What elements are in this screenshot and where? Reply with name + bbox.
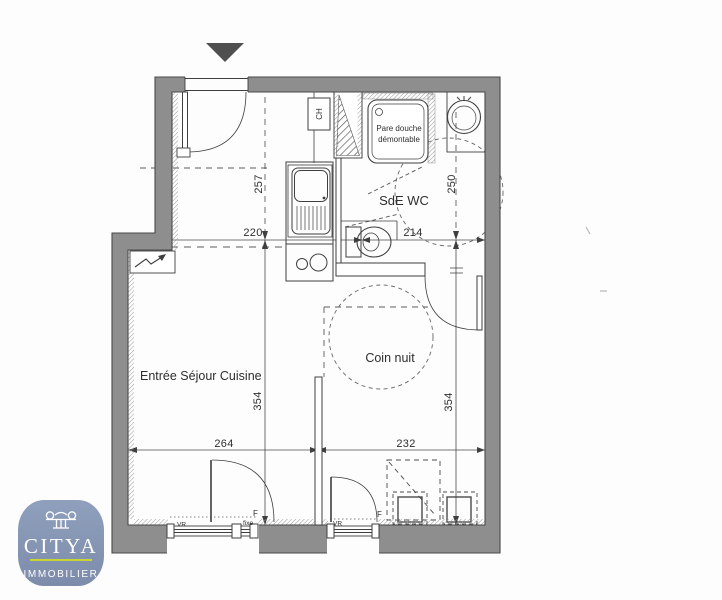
partition-bathroom-bedroom xyxy=(336,263,425,276)
sink-bowl xyxy=(295,171,328,202)
water-heater: CH xyxy=(308,98,330,130)
dimension-354-right: 354 xyxy=(443,392,455,411)
scan-artifacts xyxy=(586,227,607,291)
walls xyxy=(112,77,500,553)
room-label-living: Entrée Séjour Cuisine xyxy=(140,369,262,383)
water-heater-label: CH xyxy=(315,108,324,120)
sink-drain xyxy=(323,197,326,200)
shower-label-line2: démontable xyxy=(378,135,420,144)
wardrobe-diagonal xyxy=(389,462,436,516)
radiator-2 xyxy=(447,497,471,522)
interior-door-leaf xyxy=(477,276,482,330)
window-2: VR F xyxy=(327,477,382,555)
shower-label-line1: Pare douche xyxy=(376,124,422,133)
radiator-1 xyxy=(398,497,422,522)
hob-burner-large xyxy=(310,254,327,271)
partitions xyxy=(315,158,425,525)
entrance-door-swing xyxy=(187,92,246,152)
logo-brand: CITYA xyxy=(24,534,98,558)
window-1-type-label: F xyxy=(253,509,258,518)
washbasin-tap xyxy=(457,96,471,100)
duct-hatch xyxy=(334,92,362,158)
toilet-cistern xyxy=(346,227,361,257)
partition-living-bedroom xyxy=(315,377,322,525)
entrance-marker-triangle xyxy=(206,43,244,62)
room-label-sleeping: Coin nuit xyxy=(365,351,415,365)
window-2-type-label: F xyxy=(377,510,382,519)
hob-burner-small xyxy=(297,259,308,270)
dimension-354-left: 354 xyxy=(252,391,264,410)
entrance-door-leaf xyxy=(183,92,188,150)
washbasin xyxy=(447,92,485,152)
window-2-shutter-label: VR xyxy=(333,521,342,528)
sink-drainer-lines xyxy=(297,206,325,230)
dimension-264: 264 xyxy=(214,438,233,450)
window-2-swing xyxy=(331,477,377,522)
interior-door xyxy=(425,276,482,330)
citya-logo: CITYA IMMOBILIER xyxy=(18,500,104,586)
washbasin-bowl xyxy=(448,101,481,134)
dimension-232: 232 xyxy=(396,438,415,450)
shower: Pare douche démontable xyxy=(363,93,435,163)
window-1-shutter-label: VR xyxy=(177,522,186,529)
bedroom-furniture xyxy=(387,460,477,524)
dimension-220: 220 xyxy=(243,227,262,239)
interior-door-swing xyxy=(425,276,480,330)
partition-kitchen-bathroom xyxy=(336,158,341,263)
dimension-250: 250 xyxy=(446,174,458,193)
floor-plan-page: CH Pare douche démontable xyxy=(0,0,722,600)
entry-arrow xyxy=(130,251,175,273)
dimension-257: 257 xyxy=(253,174,265,193)
floor-plan-drawing: CH Pare douche démontable xyxy=(0,0,722,600)
entrance-door xyxy=(177,76,248,158)
kitchen-counter xyxy=(286,162,333,281)
toilet-bowl xyxy=(357,227,391,257)
room-label-bathroom: SdE WC xyxy=(379,193,429,208)
dimension-214: 214 xyxy=(403,227,422,239)
window-1-fixed-label: fixe xyxy=(243,520,254,527)
window-1: VR fixe F xyxy=(167,460,274,555)
turning-circle-bedroom xyxy=(329,285,433,389)
logo-subtitle: IMMOBILIER xyxy=(24,569,99,580)
